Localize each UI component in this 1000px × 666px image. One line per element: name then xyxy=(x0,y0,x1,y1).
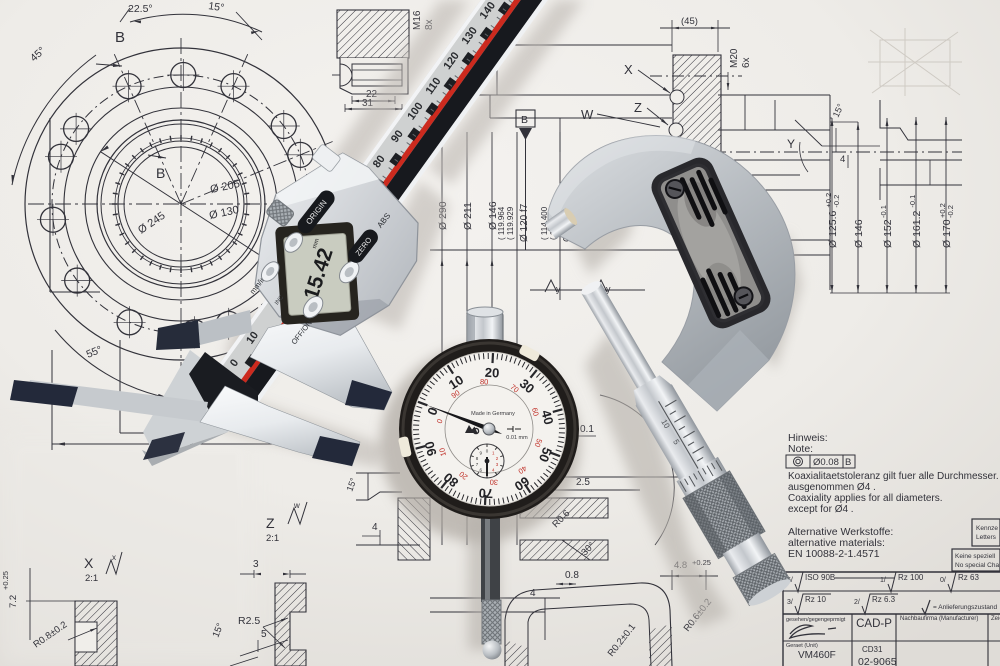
svg-text:W: W xyxy=(581,107,594,122)
svg-text:Koaxialitaetstoleranz gilt fue: Koaxialitaetstoleranz gilt fuer alle Dur… xyxy=(788,471,999,482)
svg-text:Made in Germany: Made in Germany xyxy=(471,411,515,417)
svg-text:6x: 6x xyxy=(741,57,752,68)
svg-text:x: x xyxy=(112,553,116,562)
svg-text:Geraet (Unit): Geraet (Unit) xyxy=(786,643,818,649)
svg-text:7.2: 7.2 xyxy=(8,595,19,608)
svg-text:Ø 120 f7: Ø 120 f7 xyxy=(519,203,530,242)
svg-text:Z: Z xyxy=(266,515,275,531)
svg-text:Rz 63: Rz 63 xyxy=(958,573,979,582)
svg-text:Note:: Note: xyxy=(788,443,813,455)
svg-text:EN 10088-2-1.4571: EN 10088-2-1.4571 xyxy=(788,548,880,560)
svg-text:-0.1: -0.1 xyxy=(908,195,917,208)
svg-text:(45): (45) xyxy=(681,16,698,27)
svg-text:4: 4 xyxy=(840,154,845,165)
svg-text:0.8: 0.8 xyxy=(565,570,579,581)
svg-text:+0.25: +0.25 xyxy=(1,571,10,590)
svg-text:2:1: 2:1 xyxy=(266,533,279,544)
svg-text:gesehen/gegengeprmigt: gesehen/gegengeprmigt xyxy=(786,617,846,623)
svg-text:( 119.964: ( 119.964 xyxy=(497,206,506,240)
svg-text:B: B xyxy=(156,165,165,181)
svg-text:Nachbaufirma (Manufacturer): Nachbaufirma (Manufacturer) xyxy=(900,616,978,622)
svg-text:ausgenommen Ø4 .: ausgenommen Ø4 . xyxy=(788,482,876,493)
svg-text:B: B xyxy=(521,114,528,126)
svg-text:M16: M16 xyxy=(412,10,423,30)
svg-text:22.5°: 22.5° xyxy=(128,3,153,15)
svg-text:-0.2: -0.2 xyxy=(832,195,841,208)
svg-text:except for Ø4 .: except for Ø4 . xyxy=(788,504,854,515)
svg-text:3/: 3/ xyxy=(787,599,793,606)
svg-text:Ø 152: Ø 152 xyxy=(882,219,894,248)
svg-text:2:1: 2:1 xyxy=(85,573,98,584)
svg-text:70: 70 xyxy=(478,486,493,502)
svg-text:Y: Y xyxy=(787,137,795,151)
svg-text:30: 30 xyxy=(489,477,498,486)
svg-text:Ø0.08: Ø0.08 xyxy=(813,457,839,468)
svg-text:Ø 170: Ø 170 xyxy=(941,219,953,248)
svg-text:Ø 125.6: Ø 125.6 xyxy=(827,210,839,248)
svg-text:Rz 100: Rz 100 xyxy=(898,573,924,582)
svg-text:Kennze: Kennze xyxy=(976,525,998,532)
svg-text:B: B xyxy=(845,457,851,468)
svg-text:R2.5: R2.5 xyxy=(238,615,260,627)
svg-text:w: w xyxy=(293,501,300,510)
svg-text:0/: 0/ xyxy=(940,577,946,584)
svg-text:No special Cha: No special Cha xyxy=(955,562,999,569)
svg-text:Ø 161.2: Ø 161.2 xyxy=(911,210,923,248)
svg-text:Ø 146: Ø 146 xyxy=(853,219,865,248)
svg-text:Rz 10: Rz 10 xyxy=(805,595,826,604)
svg-text:Zeic: Zeic xyxy=(991,616,1000,622)
svg-text:= Anlieferungszustand: = Anlieferungszustand xyxy=(933,604,998,611)
svg-text:B: B xyxy=(115,29,125,46)
svg-text:Ø 211: Ø 211 xyxy=(462,202,474,230)
svg-text:M20: M20 xyxy=(729,48,740,68)
svg-text:ISO 90B-: ISO 90B- xyxy=(805,573,838,582)
svg-text:Rz 6.3: Rz 6.3 xyxy=(872,595,896,604)
svg-text:CD31: CD31 xyxy=(862,645,883,654)
svg-text:-0.1: -0.1 xyxy=(879,205,888,218)
svg-text:CAD-P: CAD-P xyxy=(856,618,892,630)
svg-text:5: 5 xyxy=(261,629,267,640)
svg-text:0.01 mm: 0.01 mm xyxy=(506,435,528,441)
svg-text:Coaxiality applies for all dia: Coaxiality applies for all diameters. xyxy=(788,493,943,504)
svg-text:15°: 15° xyxy=(208,0,225,14)
svg-text:X: X xyxy=(84,555,94,571)
svg-text:Keine speziell: Keine speziell xyxy=(955,553,996,560)
svg-text:0.1: 0.1 xyxy=(580,424,594,435)
svg-text:2.5: 2.5 xyxy=(576,477,590,488)
svg-text:1/: 1/ xyxy=(880,577,886,584)
svg-text:Z: Z xyxy=(634,100,642,115)
svg-text:4: 4 xyxy=(372,522,378,533)
svg-text:VM460F: VM460F xyxy=(798,650,836,661)
svg-text:Letters: Letters xyxy=(976,534,997,541)
svg-text:3: 3 xyxy=(253,559,259,570)
svg-text:y: y xyxy=(606,284,611,294)
svg-text:( 119.929: ( 119.929 xyxy=(506,206,515,240)
svg-text:-0.2: -0.2 xyxy=(946,205,955,218)
svg-text:X: X xyxy=(624,62,633,77)
svg-text:2/: 2/ xyxy=(854,599,860,606)
svg-text:02-9065: 02-9065 xyxy=(858,656,897,666)
